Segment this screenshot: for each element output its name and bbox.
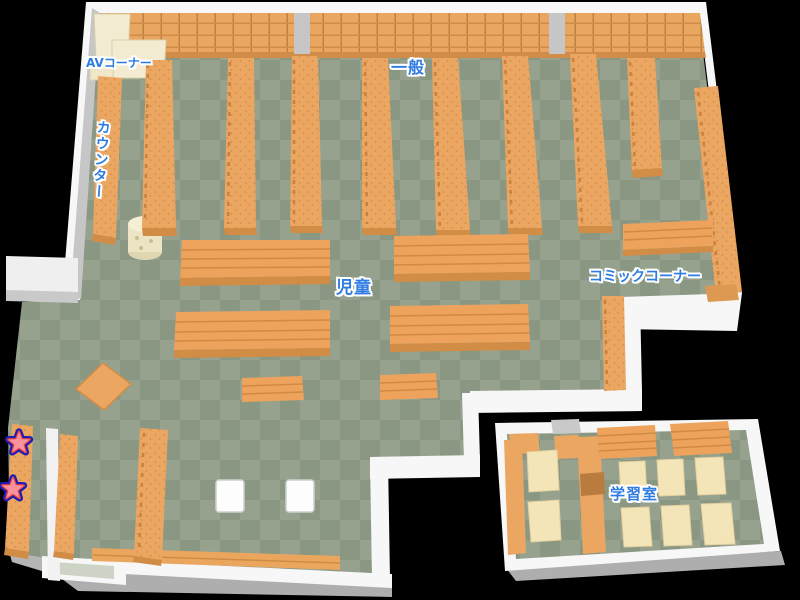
round-rack-dot bbox=[135, 236, 139, 240]
study-room-cabinet bbox=[554, 435, 580, 459]
study-room-cabinet bbox=[509, 433, 540, 454]
label-study-room: 学習室 bbox=[610, 486, 658, 503]
step2-wall-v bbox=[462, 393, 480, 461]
wall-bookshelf-row bbox=[102, 13, 705, 52]
step3-wall-v bbox=[370, 459, 390, 580]
label-comic-corner: コミックコーナー bbox=[589, 270, 701, 285]
pillar bbox=[294, 13, 310, 54]
bookshelf bbox=[134, 428, 168, 560]
left-wall-end-face bbox=[6, 290, 78, 303]
study-table bbox=[527, 450, 559, 492]
comic-shelf bbox=[623, 220, 713, 250]
study-table bbox=[528, 500, 561, 542]
kiosk-block bbox=[216, 480, 244, 512]
wall-shelf-corner-block bbox=[705, 284, 739, 302]
label-children: 児童 bbox=[336, 279, 372, 298]
study-room-partition-door bbox=[580, 472, 605, 496]
study-table bbox=[657, 459, 685, 496]
study-table bbox=[695, 457, 726, 495]
pillar bbox=[549, 13, 565, 54]
kiosk-block bbox=[286, 480, 314, 512]
study-room-doorway bbox=[551, 419, 581, 434]
label-general: 一般 bbox=[391, 59, 425, 77]
round-rack-dot bbox=[149, 239, 153, 243]
small-shelf bbox=[242, 376, 304, 402]
study-table bbox=[621, 507, 652, 547]
step2-wall-h bbox=[470, 389, 642, 413]
small-shelf bbox=[380, 373, 438, 400]
round-rack-dot bbox=[139, 246, 143, 250]
label-av-corner: AVコーナー bbox=[86, 57, 152, 70]
floor-map-canvas bbox=[0, 0, 800, 600]
study-table bbox=[661, 505, 692, 546]
top-wall bbox=[86, 2, 705, 13]
library-floor-map: AVコーナー カウンター 一般 児童 コミックコーナー 学習室 bbox=[0, 0, 800, 600]
study-table bbox=[701, 503, 735, 545]
